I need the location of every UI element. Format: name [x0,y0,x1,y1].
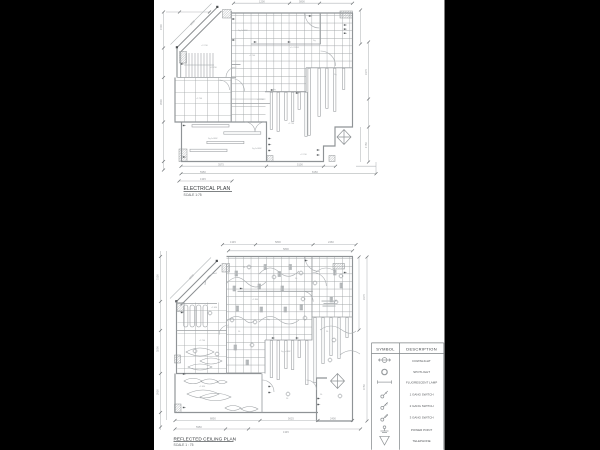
svg-text:5800: 5800 [283,247,289,251]
svg-text:2950: 2950 [156,389,160,395]
svg-text:+2.800: +2.800 [252,299,259,301]
svg-text:Dg: Dg [273,89,276,91]
svg-text:DESCRIPTION: DESCRIPTION [406,347,437,352]
svg-text:3175: 3175 [364,69,368,75]
svg-text:TELEPHONE: TELEPHONE [413,439,431,443]
svg-text:3175: 3175 [362,294,366,300]
svg-text:1345: 1345 [283,430,289,434]
svg-text:+2.700: +2.700 [257,99,265,101]
svg-text:5800: 5800 [299,0,305,4]
svg-text:+2.700: +2.700 [196,98,203,100]
svg-text:1345: 1345 [230,240,236,244]
svg-text:3500: 3500 [156,346,160,352]
svg-text:3500: 3500 [159,99,163,105]
svg-text:SCALE 1 : 75: SCALE 1 : 75 [174,443,194,447]
svg-text:Dg 2x36W: Dg 2x36W [238,30,247,32]
svg-text:2 GANG SWITCH: 2 GANG SWITCH [410,404,434,408]
svg-text:+2.700: +2.700 [300,154,308,156]
svg-text:+2.700: +2.700 [210,67,218,69]
svg-text:Dg: Dg [297,92,300,94]
svg-text:1750: 1750 [364,142,368,148]
svg-text:3 GANG SWITCH: 3 GANG SWITCH [410,416,434,420]
svg-text:+2.700: +2.700 [288,123,295,125]
svg-text:ELECTRICAL PLAN: ELECTRICAL PLAN [184,186,231,192]
svg-text:5800: 5800 [275,240,281,244]
svg-text:Dg 1x36W: Dg 1x36W [281,351,290,353]
svg-text:5100: 5100 [297,162,303,166]
svg-text:Dg: Dg [313,40,316,42]
svg-text:5625: 5625 [288,417,294,421]
svg-text:2460: 2460 [328,240,334,244]
svg-text:Dg 1x36W: Dg 1x36W [252,148,261,150]
svg-text:8850: 8850 [210,417,216,421]
svg-text:2400: 2400 [330,417,336,421]
svg-text:4750: 4750 [362,384,366,390]
svg-text:FLUORESCENT LAMP: FLUORESCENT LAMP [406,380,437,384]
svg-text:cl +2.800: cl +2.800 [290,47,300,49]
svg-text:+2.700: +2.700 [249,55,256,57]
svg-text:3575: 3575 [218,162,224,166]
svg-text:1200: 1200 [259,0,265,4]
svg-text:5950: 5950 [196,425,202,429]
svg-text:Dg 1x36W: Dg 1x36W [208,138,217,140]
svg-text:DOWNLIGHT: DOWNLIGHT [412,359,431,363]
svg-text:8150: 8150 [312,170,318,174]
svg-text:5950: 5950 [200,170,206,174]
svg-text:SYMBOL: SYMBOL [376,347,395,352]
svg-text:Dg: Dg [267,319,270,321]
svg-text:SPOTLIGHT: SPOTLIGHT [413,370,430,374]
svg-text:3150: 3150 [156,274,160,280]
svg-text:Dg: Dg [334,74,337,76]
svg-text:SCALE 1:75: SCALE 1:75 [184,193,202,197]
svg-text:1 GANG SWITCH: 1 GANG SWITCH [410,393,434,397]
svg-text:+2.650: +2.650 [199,386,206,388]
svg-text:+2.700: +2.700 [199,340,206,342]
svg-text:1345: 1345 [200,177,206,181]
svg-text:REFLECTED CEILING PLAN: REFLECTED CEILING PLAN [174,436,237,441]
svg-text:+2.650: +2.650 [211,307,218,309]
svg-text:POWER POINT: POWER POINT [411,428,433,432]
svg-text:1500: 1500 [159,24,163,30]
svg-text:+2.700: +2.700 [201,45,209,47]
